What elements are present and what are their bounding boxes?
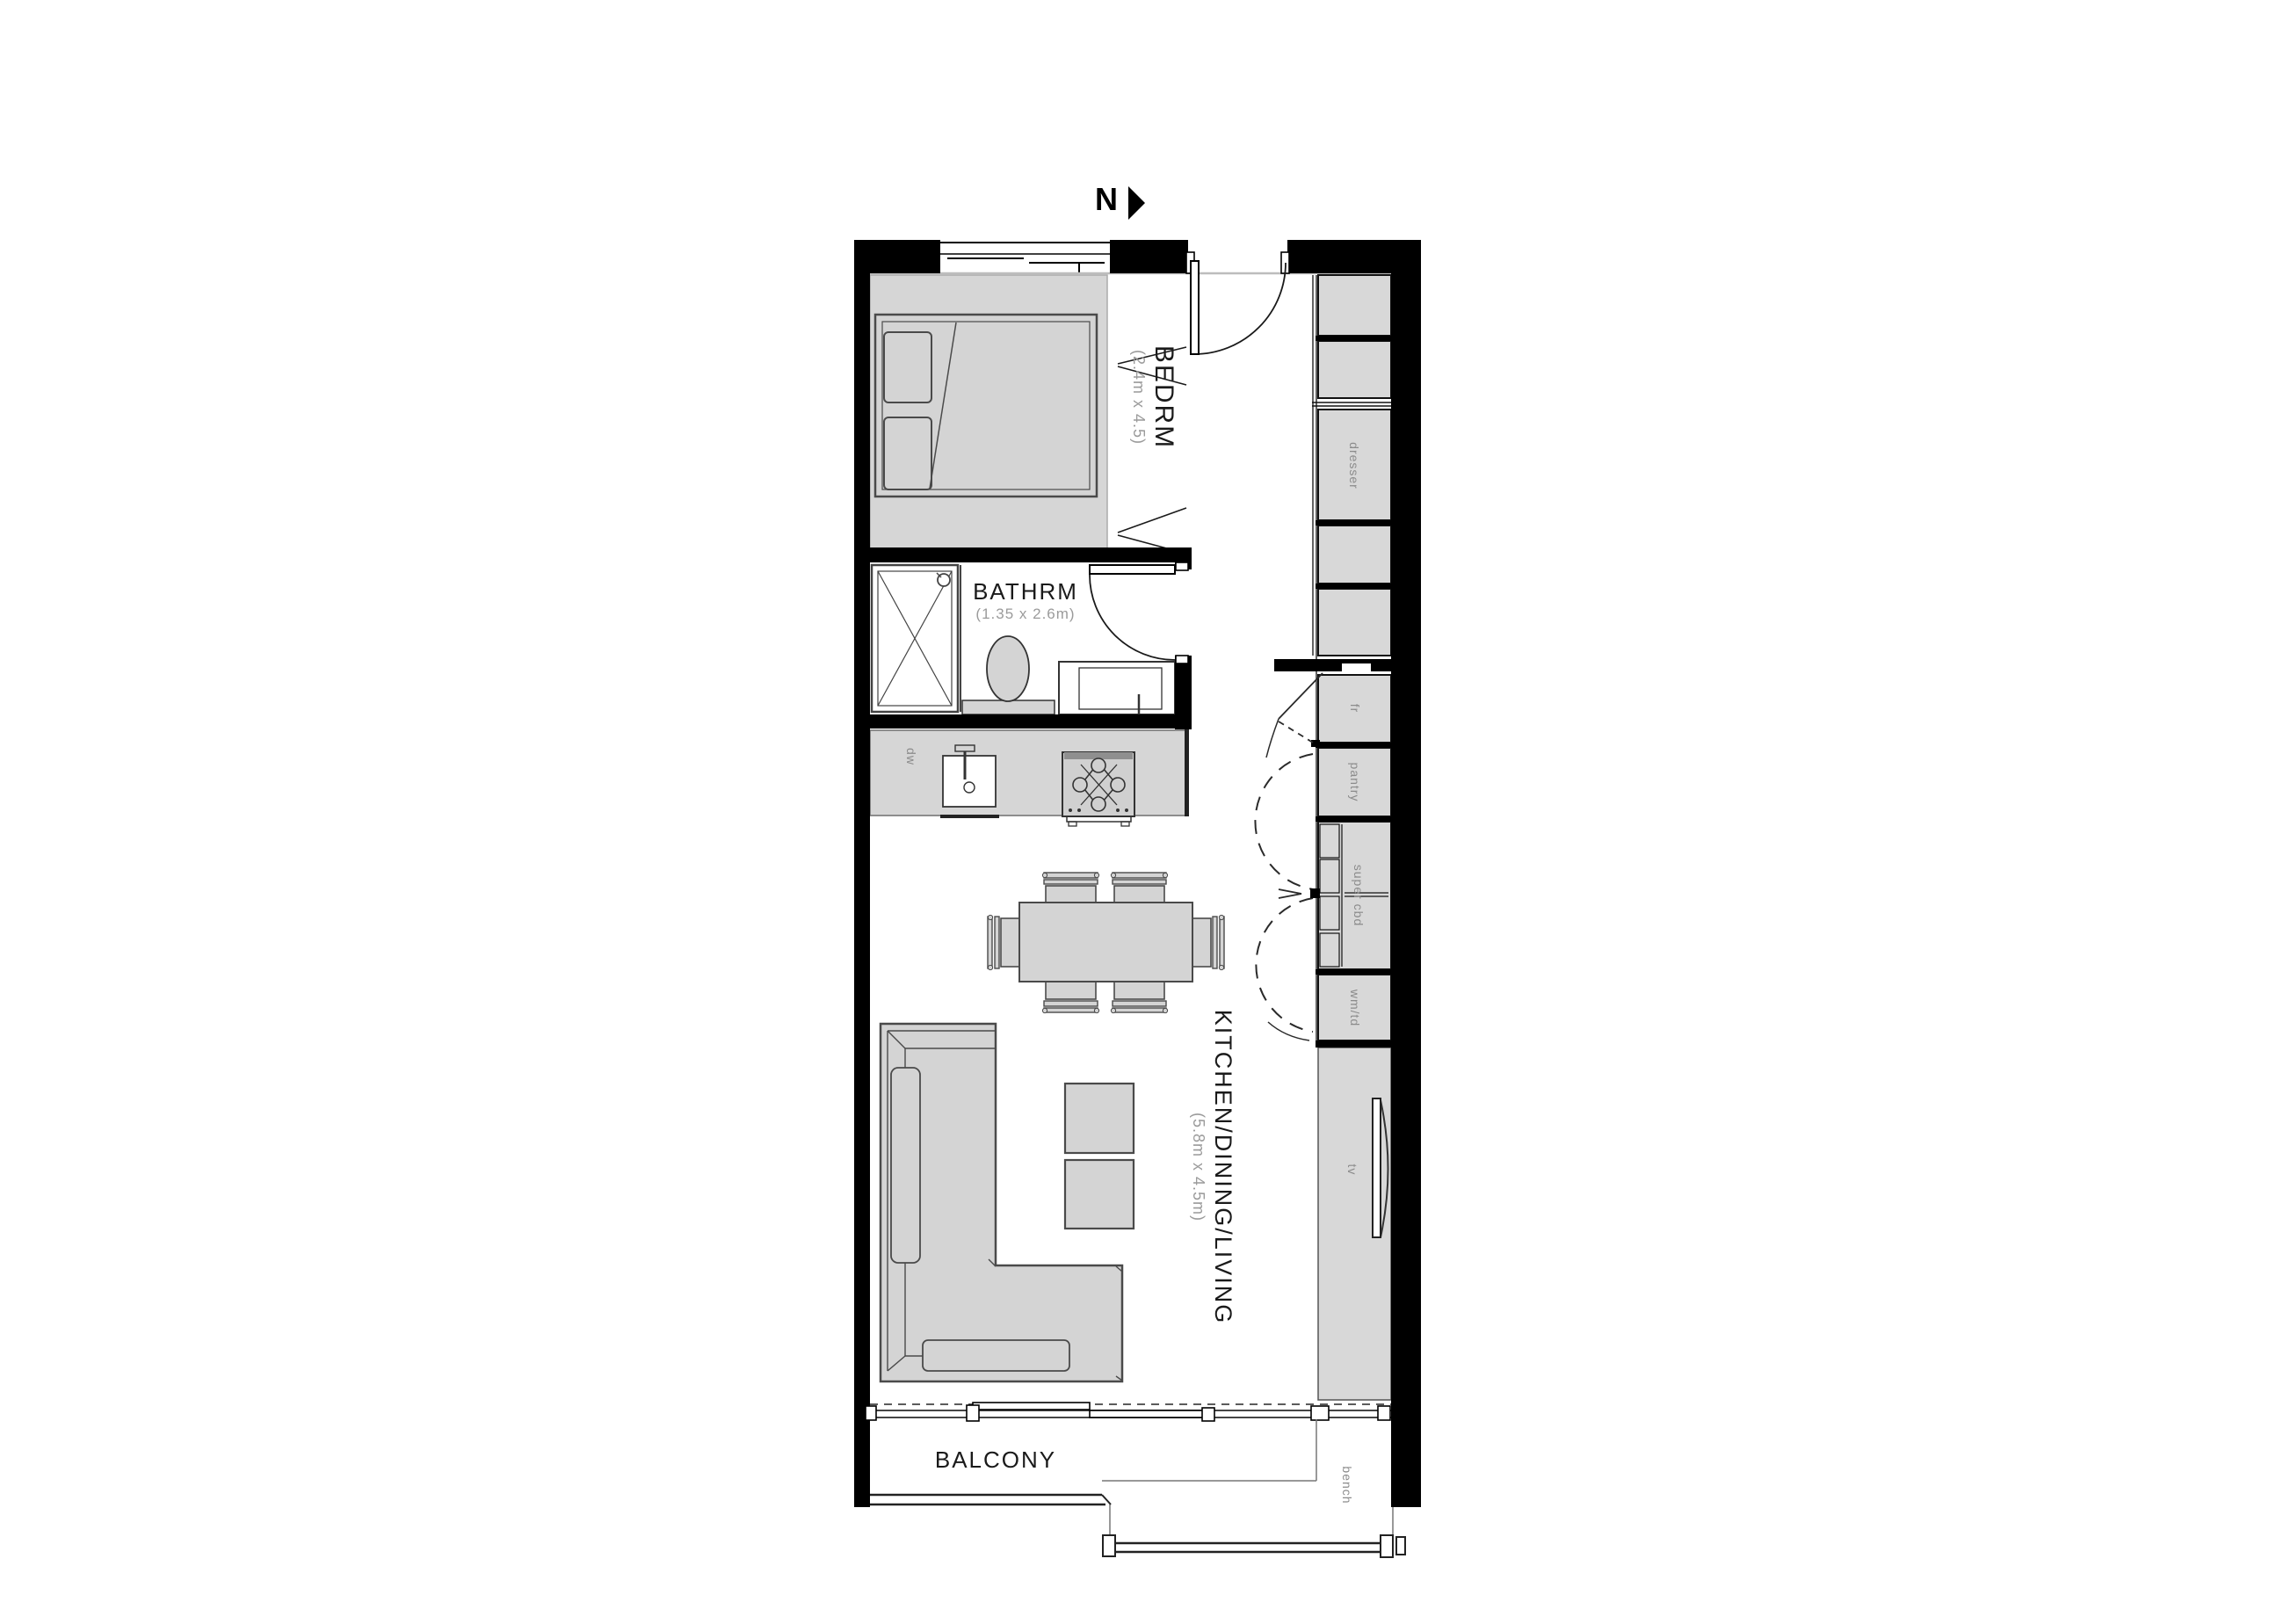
pillow xyxy=(884,417,931,489)
swing-arcs xyxy=(1255,673,1323,1040)
living-dimensions: (5.8m x 4.5m) xyxy=(1188,1113,1209,1222)
bedroom-dimensions: (2.4m x 4.5) xyxy=(1128,350,1149,445)
entry-door xyxy=(1191,261,1286,354)
label-fridge: fr xyxy=(1348,696,1362,721)
coffee-table xyxy=(1065,1084,1134,1153)
label-pantry: pantry xyxy=(1348,756,1362,808)
sliding-door-panel xyxy=(973,1403,1090,1410)
label-tv: tv xyxy=(1345,1156,1359,1183)
floor-plan-drawing xyxy=(0,0,2276,1624)
bed xyxy=(875,315,1097,497)
dining-chair xyxy=(1111,982,1167,1013)
wall-bathroom-kitchen xyxy=(854,714,1188,729)
sliding-door-panel xyxy=(1090,1410,1208,1417)
label-dishwasher: dw xyxy=(904,743,918,770)
label-dresser: dresser xyxy=(1347,439,1361,492)
dishwasher-front xyxy=(940,815,999,818)
north-arrow-icon xyxy=(1128,186,1145,220)
toilet-bowl xyxy=(987,636,1029,701)
tv-screen xyxy=(1373,1098,1381,1237)
dining-chair xyxy=(1111,873,1167,903)
balcony-railing xyxy=(870,1495,1405,1557)
label-bench: bench xyxy=(1340,1461,1354,1510)
chaise-cushion xyxy=(891,1068,920,1263)
coffee-table xyxy=(1065,1160,1134,1229)
dining-chair xyxy=(1042,873,1098,903)
bedroom-window xyxy=(939,243,1112,273)
bathroom-dimensions: (1.35 x 2.6m) xyxy=(975,605,1075,624)
dining-chair xyxy=(988,915,1019,969)
coffee-tables xyxy=(1065,1084,1134,1229)
living-name: KITCHEN/DINING/LIVING xyxy=(1209,1010,1237,1325)
dining-table xyxy=(1019,903,1192,982)
toilet-cistern xyxy=(962,700,1055,714)
kitchen-sink xyxy=(940,745,999,818)
north-label: N xyxy=(1095,181,1118,218)
entry-nib-wall xyxy=(1274,659,1393,671)
balcony-name: BALCONY xyxy=(935,1446,1056,1474)
bathroom-door-leaf xyxy=(1090,565,1175,574)
sink-tap-icon xyxy=(955,745,975,751)
bathroom-name: BATHRM xyxy=(973,578,1078,605)
pillow xyxy=(884,332,931,402)
room-label-balcony: BALCONY xyxy=(908,1446,1084,1474)
label-washer-dryer: wm/td xyxy=(1348,986,1362,1030)
dining-set xyxy=(988,873,1224,1013)
label-super-cupboard: super cbd xyxy=(1352,860,1366,931)
wall-bedroom-bathroom xyxy=(854,547,1186,562)
floor-plan-canvas: N BEDRM (2.4m x 4.5) BATHRM (1.35 x 2.6m… xyxy=(0,0,2276,1624)
bedroom-name: BEDRM xyxy=(1149,345,1178,449)
vanity xyxy=(1059,662,1175,714)
dining-chair xyxy=(1192,915,1224,969)
wall-east xyxy=(1391,240,1421,1507)
room-label-living: KITCHEN/DINING/LIVING (5.8m x 4.5m) xyxy=(1188,1022,1237,1312)
room-label-bedroom: BEDRM (2.4m x 4.5) xyxy=(1127,318,1178,476)
wall-west xyxy=(854,240,870,1507)
balcony-window xyxy=(866,1403,1391,1421)
room-label-bathroom: BATHRM (1.35 x 2.6m) xyxy=(938,578,1113,624)
dining-chair xyxy=(1042,982,1098,1013)
wall-north xyxy=(854,240,940,273)
toilet xyxy=(962,636,1055,714)
cooktop xyxy=(1062,752,1134,826)
seat-cushion xyxy=(923,1340,1069,1371)
entry-door-leaf xyxy=(1191,261,1199,354)
